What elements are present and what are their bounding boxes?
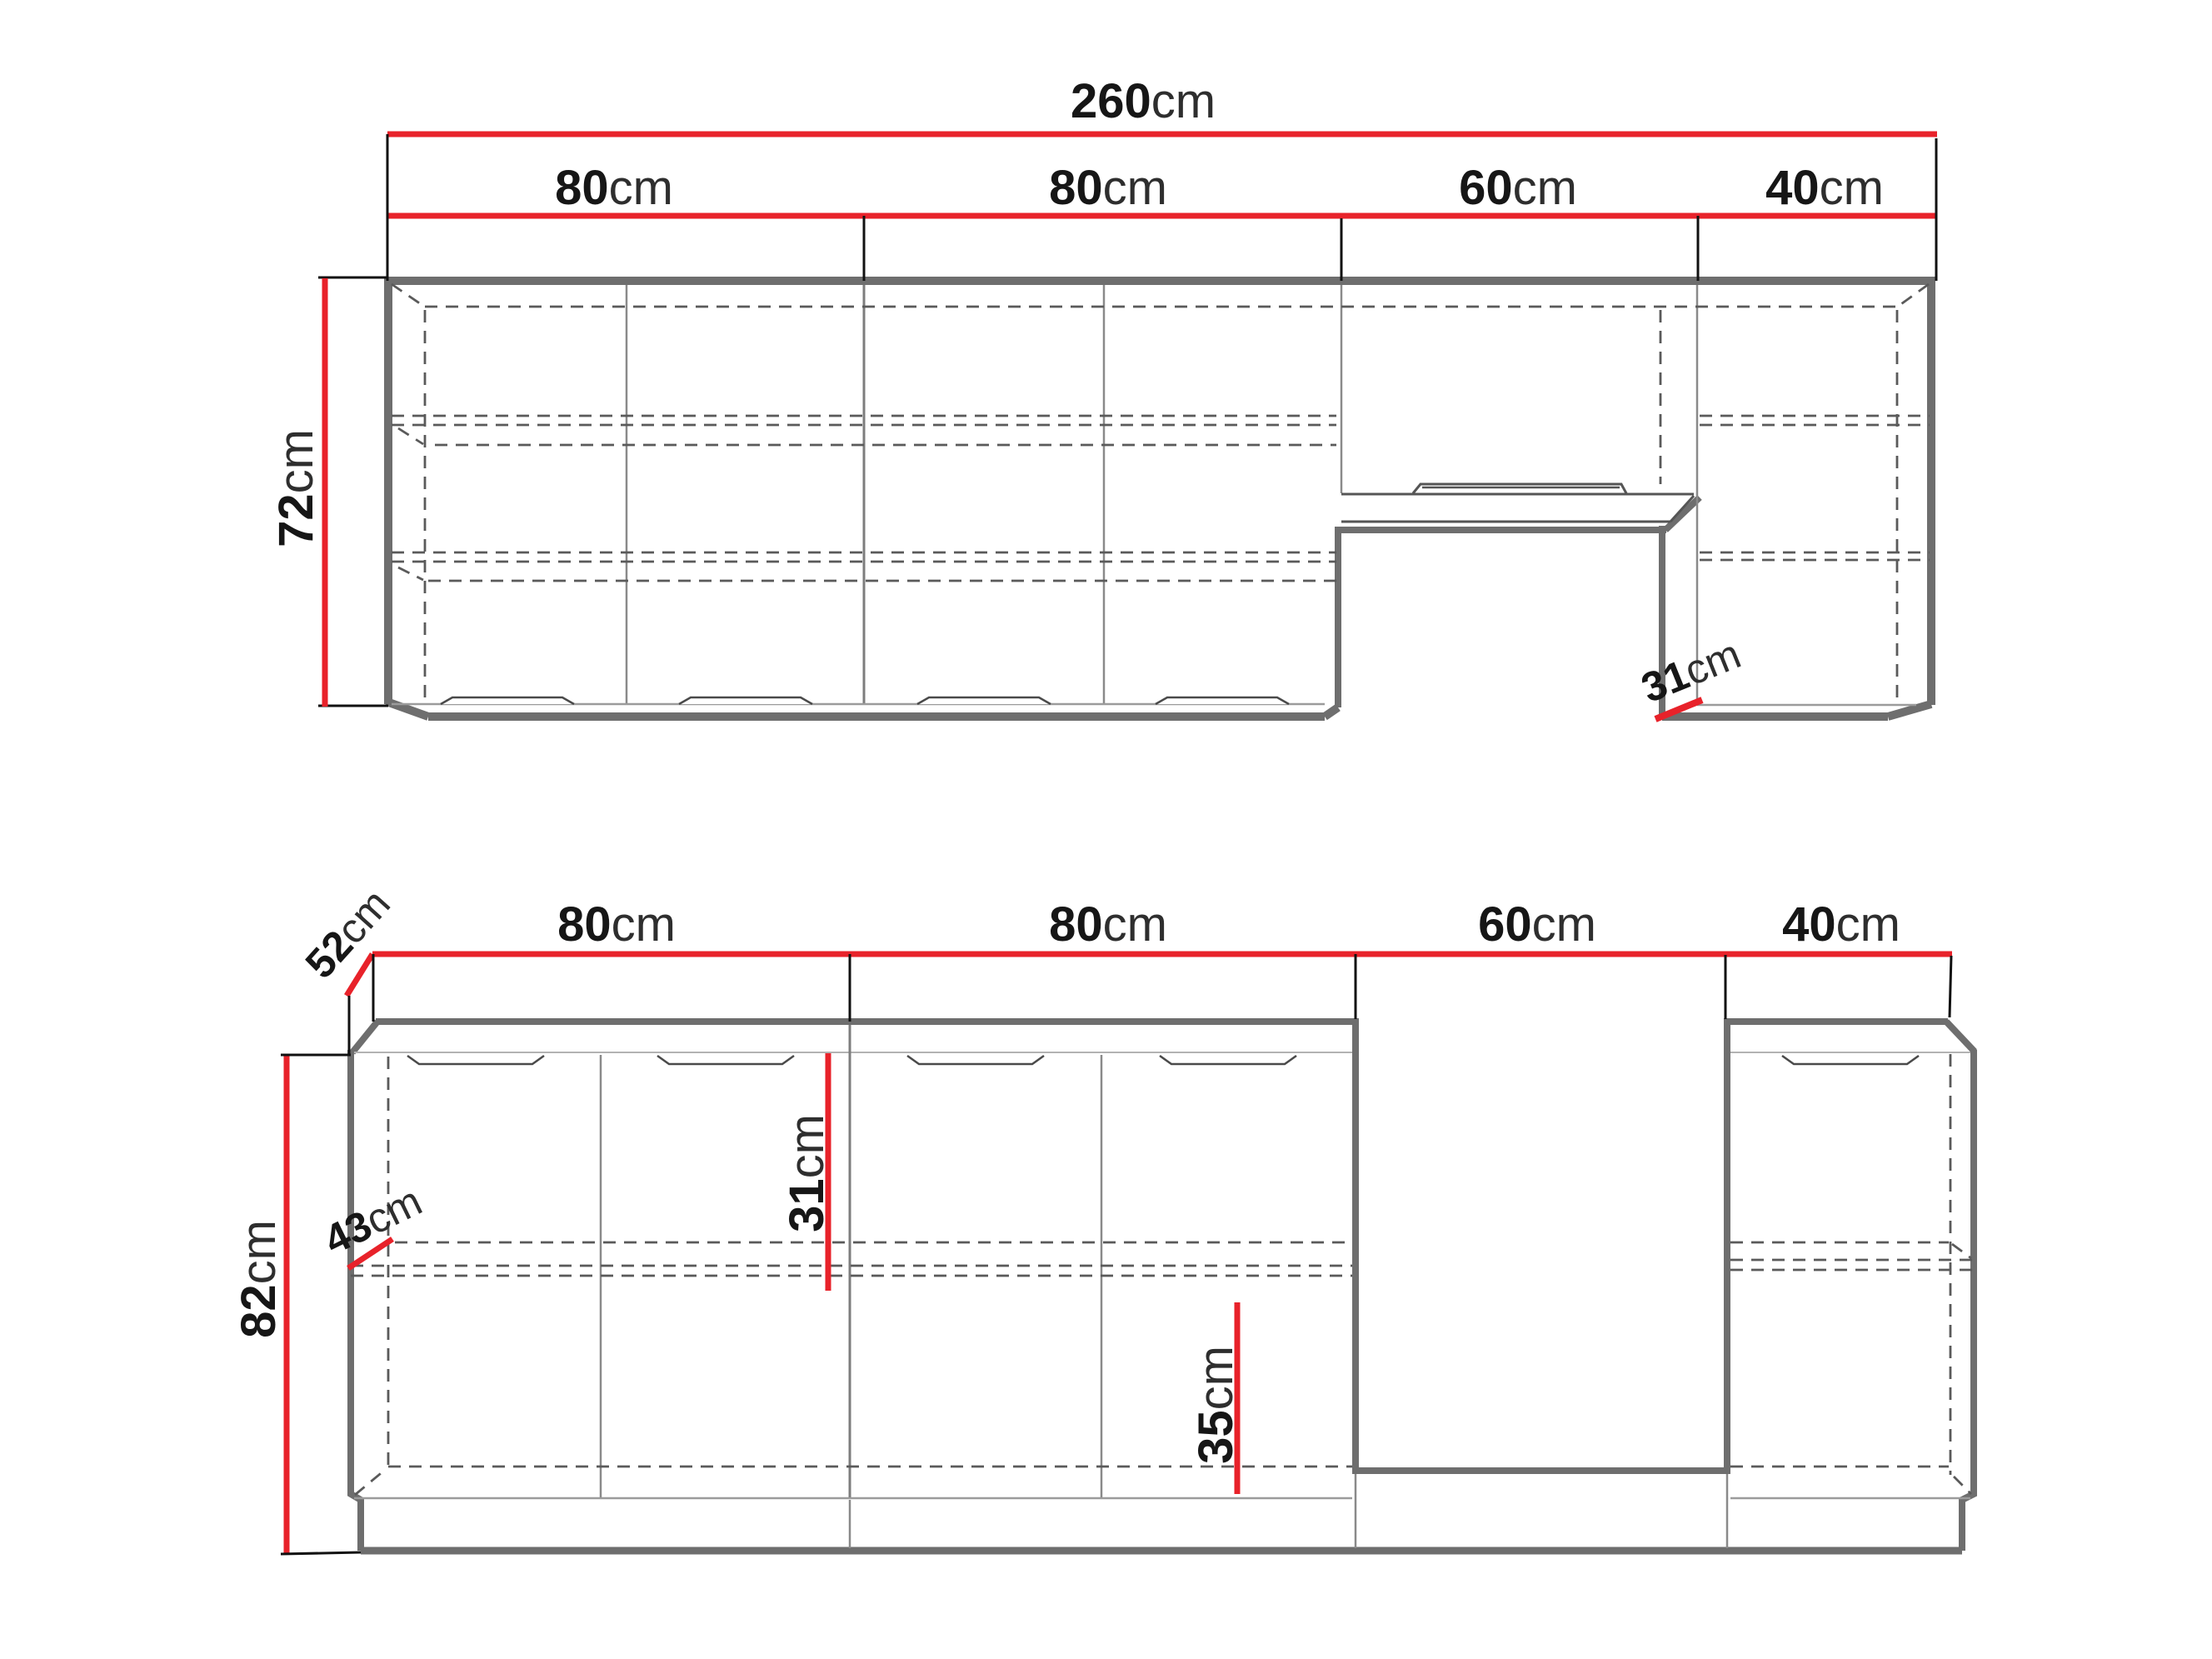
- svg-text:60cm: 60cm: [1478, 897, 1596, 952]
- svg-text:260cm: 260cm: [1071, 74, 1216, 128]
- svg-text:80cm: 80cm: [1049, 897, 1167, 952]
- svg-text:82cm: 82cm: [232, 1220, 286, 1338]
- svg-text:40cm: 40cm: [1765, 161, 1884, 215]
- svg-text:80cm: 80cm: [1049, 161, 1167, 215]
- svg-text:31cm: 31cm: [780, 1114, 834, 1232]
- svg-text:35cm: 35cm: [1189, 1346, 1243, 1464]
- svg-text:40cm: 40cm: [1782, 897, 1900, 952]
- svg-text:60cm: 60cm: [1459, 161, 1577, 215]
- svg-text:80cm: 80cm: [555, 161, 673, 215]
- svg-text:72cm: 72cm: [269, 429, 323, 547]
- svg-text:80cm: 80cm: [557, 897, 676, 952]
